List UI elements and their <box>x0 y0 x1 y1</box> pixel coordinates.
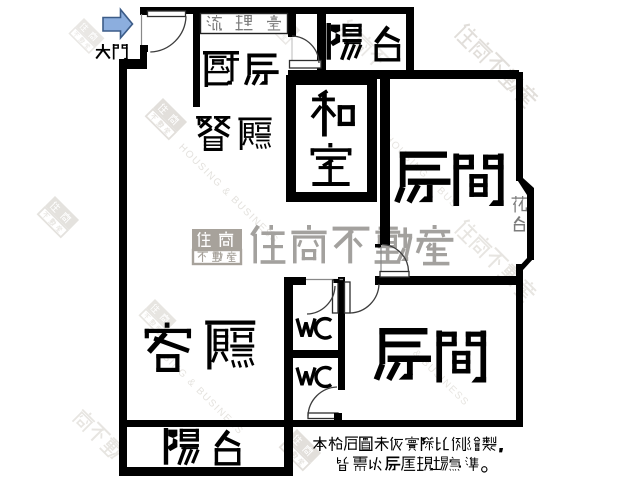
svg-text:HOUSING & BUS: HOUSING & BUS <box>382 133 460 211</box>
